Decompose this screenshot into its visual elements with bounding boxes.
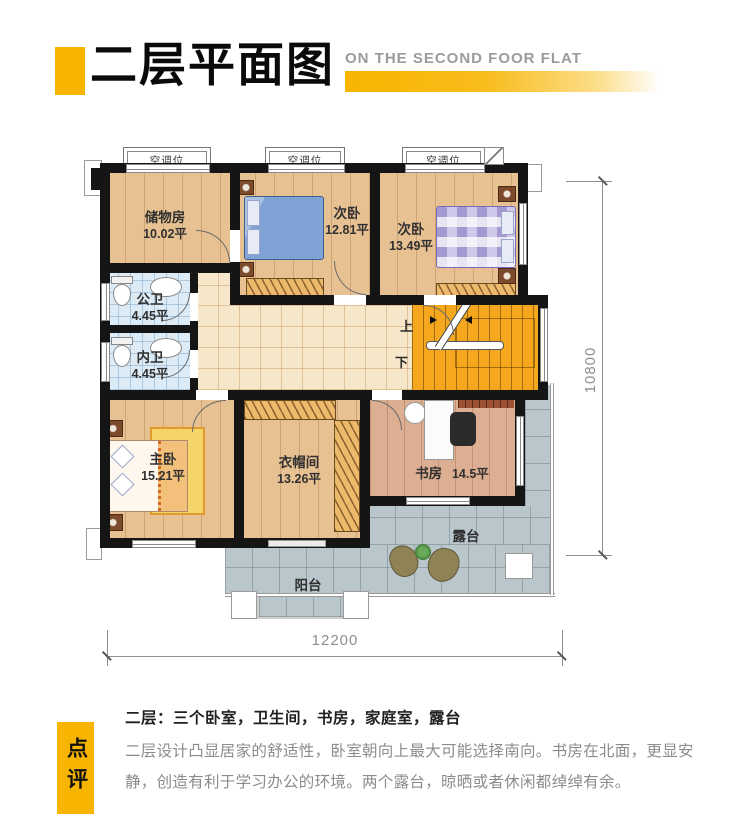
room-area: 15.21平	[118, 468, 208, 484]
room-area: 12.81平	[316, 222, 378, 238]
pillow-icon	[247, 229, 260, 255]
room-name: 次卧	[380, 222, 442, 238]
floor-hallway	[197, 305, 412, 390]
railing-post	[505, 553, 533, 579]
stairs-up-label: 上	[400, 316, 413, 335]
exterior-door-icon	[484, 147, 504, 165]
chair-icon	[450, 412, 476, 446]
dim-line-horizontal	[107, 656, 563, 657]
table-icon	[404, 402, 426, 424]
toilet-tank-icon	[111, 276, 133, 284]
room-area: 10.02平	[123, 226, 207, 242]
window	[519, 203, 527, 265]
room-label-bedroom-a: 次卧 12.81平	[316, 206, 378, 238]
room-name: 书房	[415, 466, 442, 481]
exterior-step	[526, 164, 542, 192]
door-gap	[190, 350, 198, 378]
room-name: 衣帽间	[247, 455, 351, 471]
room-area: 13.26平	[247, 471, 351, 487]
gradient-bar	[345, 71, 660, 92]
floor-plan-page: 二层平面图 ON THE SECOND FOOR FLAT	[0, 0, 750, 823]
railing-post	[231, 591, 257, 619]
wall-segment	[100, 263, 238, 273]
room-name: 公卫	[110, 292, 190, 308]
balcony-railing	[225, 593, 555, 597]
stair-arrow	[465, 316, 472, 324]
pillow-icon	[501, 239, 514, 263]
door-gap	[230, 230, 240, 262]
door-gap	[196, 390, 228, 400]
wall-segment	[360, 390, 370, 538]
terrace-railing	[550, 383, 554, 595]
room-area: 13.49平	[380, 238, 442, 254]
review-heading: 二层：三个卧室，卫生间，书房，家庭室，露台	[125, 706, 715, 728]
room-label-terrace: 露台	[446, 529, 486, 545]
room-label-bedroom-b: 次卧 13.49平	[380, 222, 442, 254]
wall-segment	[91, 168, 100, 190]
wall-segment	[100, 325, 197, 333]
room-label-master: 主卧 15.21平	[118, 452, 208, 484]
room-label-closet: 衣帽间 13.26平	[247, 455, 351, 487]
door-gap	[334, 295, 366, 305]
window	[126, 164, 210, 173]
dim-label-height: 10800	[582, 340, 598, 400]
room-name: 次卧	[316, 206, 378, 222]
dim-label-width: 12200	[300, 632, 370, 649]
nightstand-icon	[498, 268, 516, 284]
dim-line-vertical	[602, 181, 603, 556]
wall-segment	[100, 390, 548, 400]
door-gap	[190, 293, 198, 321]
pillow-icon	[501, 211, 514, 235]
page-title: 二层平面图	[90, 38, 335, 94]
nightstand-icon	[238, 262, 254, 277]
window	[132, 540, 196, 548]
page-subtitle: ON THE SECOND FOOR FLAT	[345, 50, 582, 67]
door-gap	[424, 295, 456, 305]
room-label-public-bath: 公卫 4.45平	[110, 292, 190, 324]
room-name: 主卧	[118, 452, 208, 468]
window	[540, 308, 548, 382]
room-name: 储物房	[123, 210, 207, 226]
dim-extension-line	[107, 630, 108, 666]
door-gap	[372, 390, 402, 400]
window	[101, 283, 110, 321]
room-label-study: 书房 14.5平	[396, 466, 508, 482]
window	[406, 497, 470, 505]
wall-segment	[234, 400, 244, 538]
review-body: 二层设计凸显居家的舒适性，卧室朝向上最大可能选择南向。书房在北面，更显安静，创造…	[125, 736, 705, 798]
room-area: 4.45平	[110, 308, 190, 324]
window	[516, 416, 524, 486]
pillow-icon	[247, 200, 260, 226]
railing-post	[343, 591, 369, 619]
wardrobe-icon	[244, 400, 336, 420]
window	[405, 164, 485, 173]
toilet-tank-icon	[111, 337, 133, 345]
room-label-balcony: 阳台	[286, 578, 330, 594]
room-area: 14.5平	[452, 467, 489, 481]
window	[268, 164, 345, 173]
room-name: 内卫	[110, 350, 190, 366]
room-name: 露台	[453, 529, 480, 544]
accent-block	[55, 47, 85, 95]
window	[101, 342, 110, 382]
stairs-down-label: 下	[395, 352, 408, 371]
plant-icon	[415, 544, 431, 560]
room-label-storage: 储物房 10.02平	[123, 210, 207, 242]
balcony-door-sill	[268, 540, 326, 547]
nightstand-icon	[498, 186, 516, 202]
review-tab: 点评	[57, 722, 94, 814]
dim-extension-line	[562, 630, 563, 666]
room-name: 阳台	[295, 578, 322, 593]
nightstand-icon	[238, 180, 254, 195]
room-label-private-bath: 内卫 4.45平	[110, 350, 190, 382]
room-area: 4.45平	[110, 366, 190, 382]
